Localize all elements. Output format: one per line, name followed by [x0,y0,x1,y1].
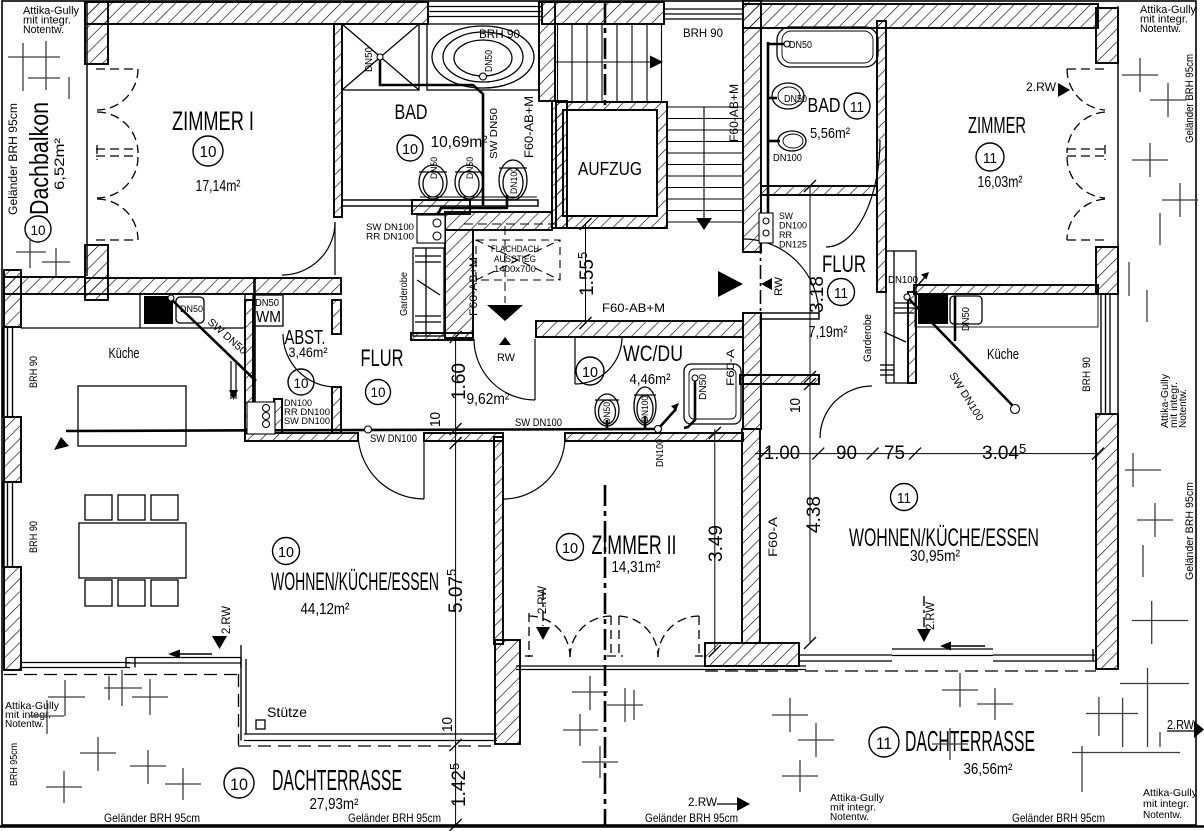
svg-text:5,56m²: 5,56m² [810,125,850,142]
svg-text:DN100: DN100 [655,439,666,467]
svg-text:AUFZUG: AUFZUG [578,159,642,179]
svg-text:Geländer BRH 95cm: Geländer BRH 95cm [645,811,738,825]
svg-text:Notentw.: Notentw. [23,24,64,36]
svg-text:4,46m²: 4,46m² [630,371,671,388]
svg-text:90: 90 [836,443,857,464]
svg-text:Geländer BRH 95cm: Geländer BRH 95cm [348,811,441,825]
svg-text:DN50: DN50 [602,402,612,424]
svg-text:10: 10 [787,398,804,413]
svg-text:DN125: DN125 [779,240,807,250]
svg-text:Dachbalkon: Dachbalkon [24,102,54,215]
svg-text:10: 10 [278,544,294,561]
svg-text:17,14m²: 17,14m² [196,178,242,195]
svg-text:2.RW: 2.RW [688,795,718,809]
svg-text:DN50: DN50 [789,40,812,51]
svg-text:11: 11 [850,99,864,116]
svg-text:2.RW: 2.RW [1026,80,1057,94]
svg-text:BRH 90: BRH 90 [683,26,723,40]
svg-text:4.38: 4.38 [804,496,825,533]
svg-text:WOHNEN/KÜCHE/ESSEN: WOHNEN/KÜCHE/ESSEN [271,568,439,596]
svg-text:F60-AB+M: F60-AB+M [468,257,480,316]
svg-text:2.RW: 2.RW [923,601,937,630]
svg-text:Geländer BRH 95cm: Geländer BRH 95cm [1184,54,1196,143]
svg-text:RR: RR [779,230,792,240]
svg-text:Stütze: Stütze [267,704,307,720]
svg-text:RW: RW [773,276,785,296]
svg-text:44,12m²: 44,12m² [301,601,351,618]
svg-text:SW DN50: SW DN50 [488,108,500,159]
svg-text:F60-A: F60-A [725,348,737,386]
svg-text:BRH 90: BRH 90 [479,27,520,41]
svg-text:16,03m²: 16,03m² [978,174,1024,191]
svg-text:ZIMMER I: ZIMMER I [172,106,254,136]
svg-text:BAD: BAD [808,95,841,117]
svg-text:DN50: DN50 [364,47,375,72]
svg-text:11: 11 [983,150,997,167]
svg-text:9,62m²: 9,62m² [467,391,511,408]
svg-text:10: 10 [402,141,418,158]
svg-text:RR DN100: RR DN100 [366,232,414,243]
svg-text:F60-AB+M: F60-AB+M [522,96,536,158]
svg-text:10: 10 [371,384,386,400]
svg-text:DN100: DN100 [773,153,802,164]
svg-text:Küche: Küche [109,345,140,362]
svg-text:BAD: BAD [395,101,428,124]
svg-text:Geländer BRH 95cm: Geländer BRH 95cm [1012,811,1105,825]
svg-text:DACHTERRASSE: DACHTERRASSE [272,765,402,797]
svg-text:F60-AB+M: F60-AB+M [727,84,741,142]
svg-text:BRH 90: BRH 90 [28,521,40,553]
svg-text:DN50: DN50 [961,307,972,331]
svg-text:10: 10 [294,375,309,391]
svg-text:DACHTERRASSE: DACHTERRASSE [905,726,1035,758]
svg-text:BRH 90: BRH 90 [28,356,40,388]
svg-text:Geländer BRH 95cm: Geländer BRH 95cm [8,103,20,215]
svg-text:2.RW: 2.RW [535,585,549,614]
svg-text:11: 11 [876,734,892,753]
svg-text:3.49: 3.49 [706,525,727,562]
svg-text:RW: RW [497,352,516,364]
svg-text:BRH 95cm: BRH 95cm [8,743,20,786]
svg-text:1400x700: 1400x700 [494,264,536,275]
svg-text:SW DN100: SW DN100 [284,416,330,426]
svg-text:3,46m²: 3,46m² [289,344,328,360]
svg-text:Geländer BRH 95cm: Geländer BRH 95cm [104,811,200,825]
svg-text:10: 10 [427,412,444,427]
svg-text:10: 10 [230,775,248,794]
svg-text:1.00: 1.00 [764,443,800,464]
svg-text:10: 10 [562,540,578,557]
svg-text:DN100: DN100 [509,167,519,194]
svg-text:2.RW: 2.RW [219,605,233,634]
svg-text:11: 11 [834,285,848,302]
svg-text:Notentw.: Notentw. [1143,809,1182,821]
svg-text:3.18: 3.18 [807,276,828,313]
svg-text:DN50: DN50 [465,157,475,179]
svg-text:Notentw.: Notentw. [5,718,44,730]
svg-text:BRH 90: BRH 90 [1081,357,1093,392]
svg-text:DN50: DN50 [698,374,709,400]
svg-text:F60-A: F60-A [766,517,780,557]
svg-text:Notentw.: Notentw. [1140,23,1181,35]
svg-text:SW DN100: SW DN100 [515,417,562,429]
svg-text:14,31m²: 14,31m² [612,559,662,576]
svg-text:ZIMMER: ZIMMER [968,112,1026,138]
svg-text:Notentw.: Notentw. [1177,389,1189,428]
svg-text:36,56m²: 36,56m² [964,761,1013,778]
svg-text:10: 10 [200,144,217,161]
svg-text:DN100: DN100 [640,396,650,422]
svg-text:DN50: DN50 [784,94,807,105]
svg-text:DN100: DN100 [779,221,807,231]
svg-text:Garderobe: Garderobe [399,272,410,316]
svg-text:ZIMMER II: ZIMMER II [592,530,677,560]
svg-text:WM: WM [256,309,281,326]
svg-text:10: 10 [582,364,598,381]
svg-text:WC/DU: WC/DU [623,341,683,366]
svg-text:FLUR: FLUR [361,345,404,372]
svg-text:2.RW: 2.RW [1167,717,1195,732]
svg-text:1.60: 1.60 [449,363,470,400]
svg-text:DN50: DN50 [484,50,495,72]
svg-text:10: 10 [31,222,46,238]
svg-text:FLUR: FLUR [822,251,866,278]
svg-text:7,19m²: 7,19m² [809,324,849,341]
svg-text:Küche: Küche [987,346,1019,363]
svg-text:Garderobe: Garderobe [862,314,874,362]
svg-text:10: 10 [439,717,456,732]
svg-text:75: 75 [884,443,905,464]
svg-text:F60-AB+M: F60-AB+M [602,301,665,315]
svg-text:SW: SW [779,211,793,221]
svg-text:DN50: DN50 [180,304,203,315]
svg-text:11: 11 [897,490,911,507]
svg-text:30,95m²: 30,95m² [910,548,961,565]
svg-text:SW DN100: SW DN100 [370,433,417,445]
svg-text:Geländer BRH 95cm: Geländer BRH 95cm [1184,482,1196,580]
svg-text:10,69m²: 10,69m² [431,134,489,151]
svg-text:DN50: DN50 [429,157,439,179]
svg-text:Notentw.: Notentw. [830,811,869,823]
svg-text:DN100: DN100 [888,275,918,286]
svg-text:DN50: DN50 [255,298,279,309]
svg-text:6,52m²: 6,52m² [51,138,67,190]
